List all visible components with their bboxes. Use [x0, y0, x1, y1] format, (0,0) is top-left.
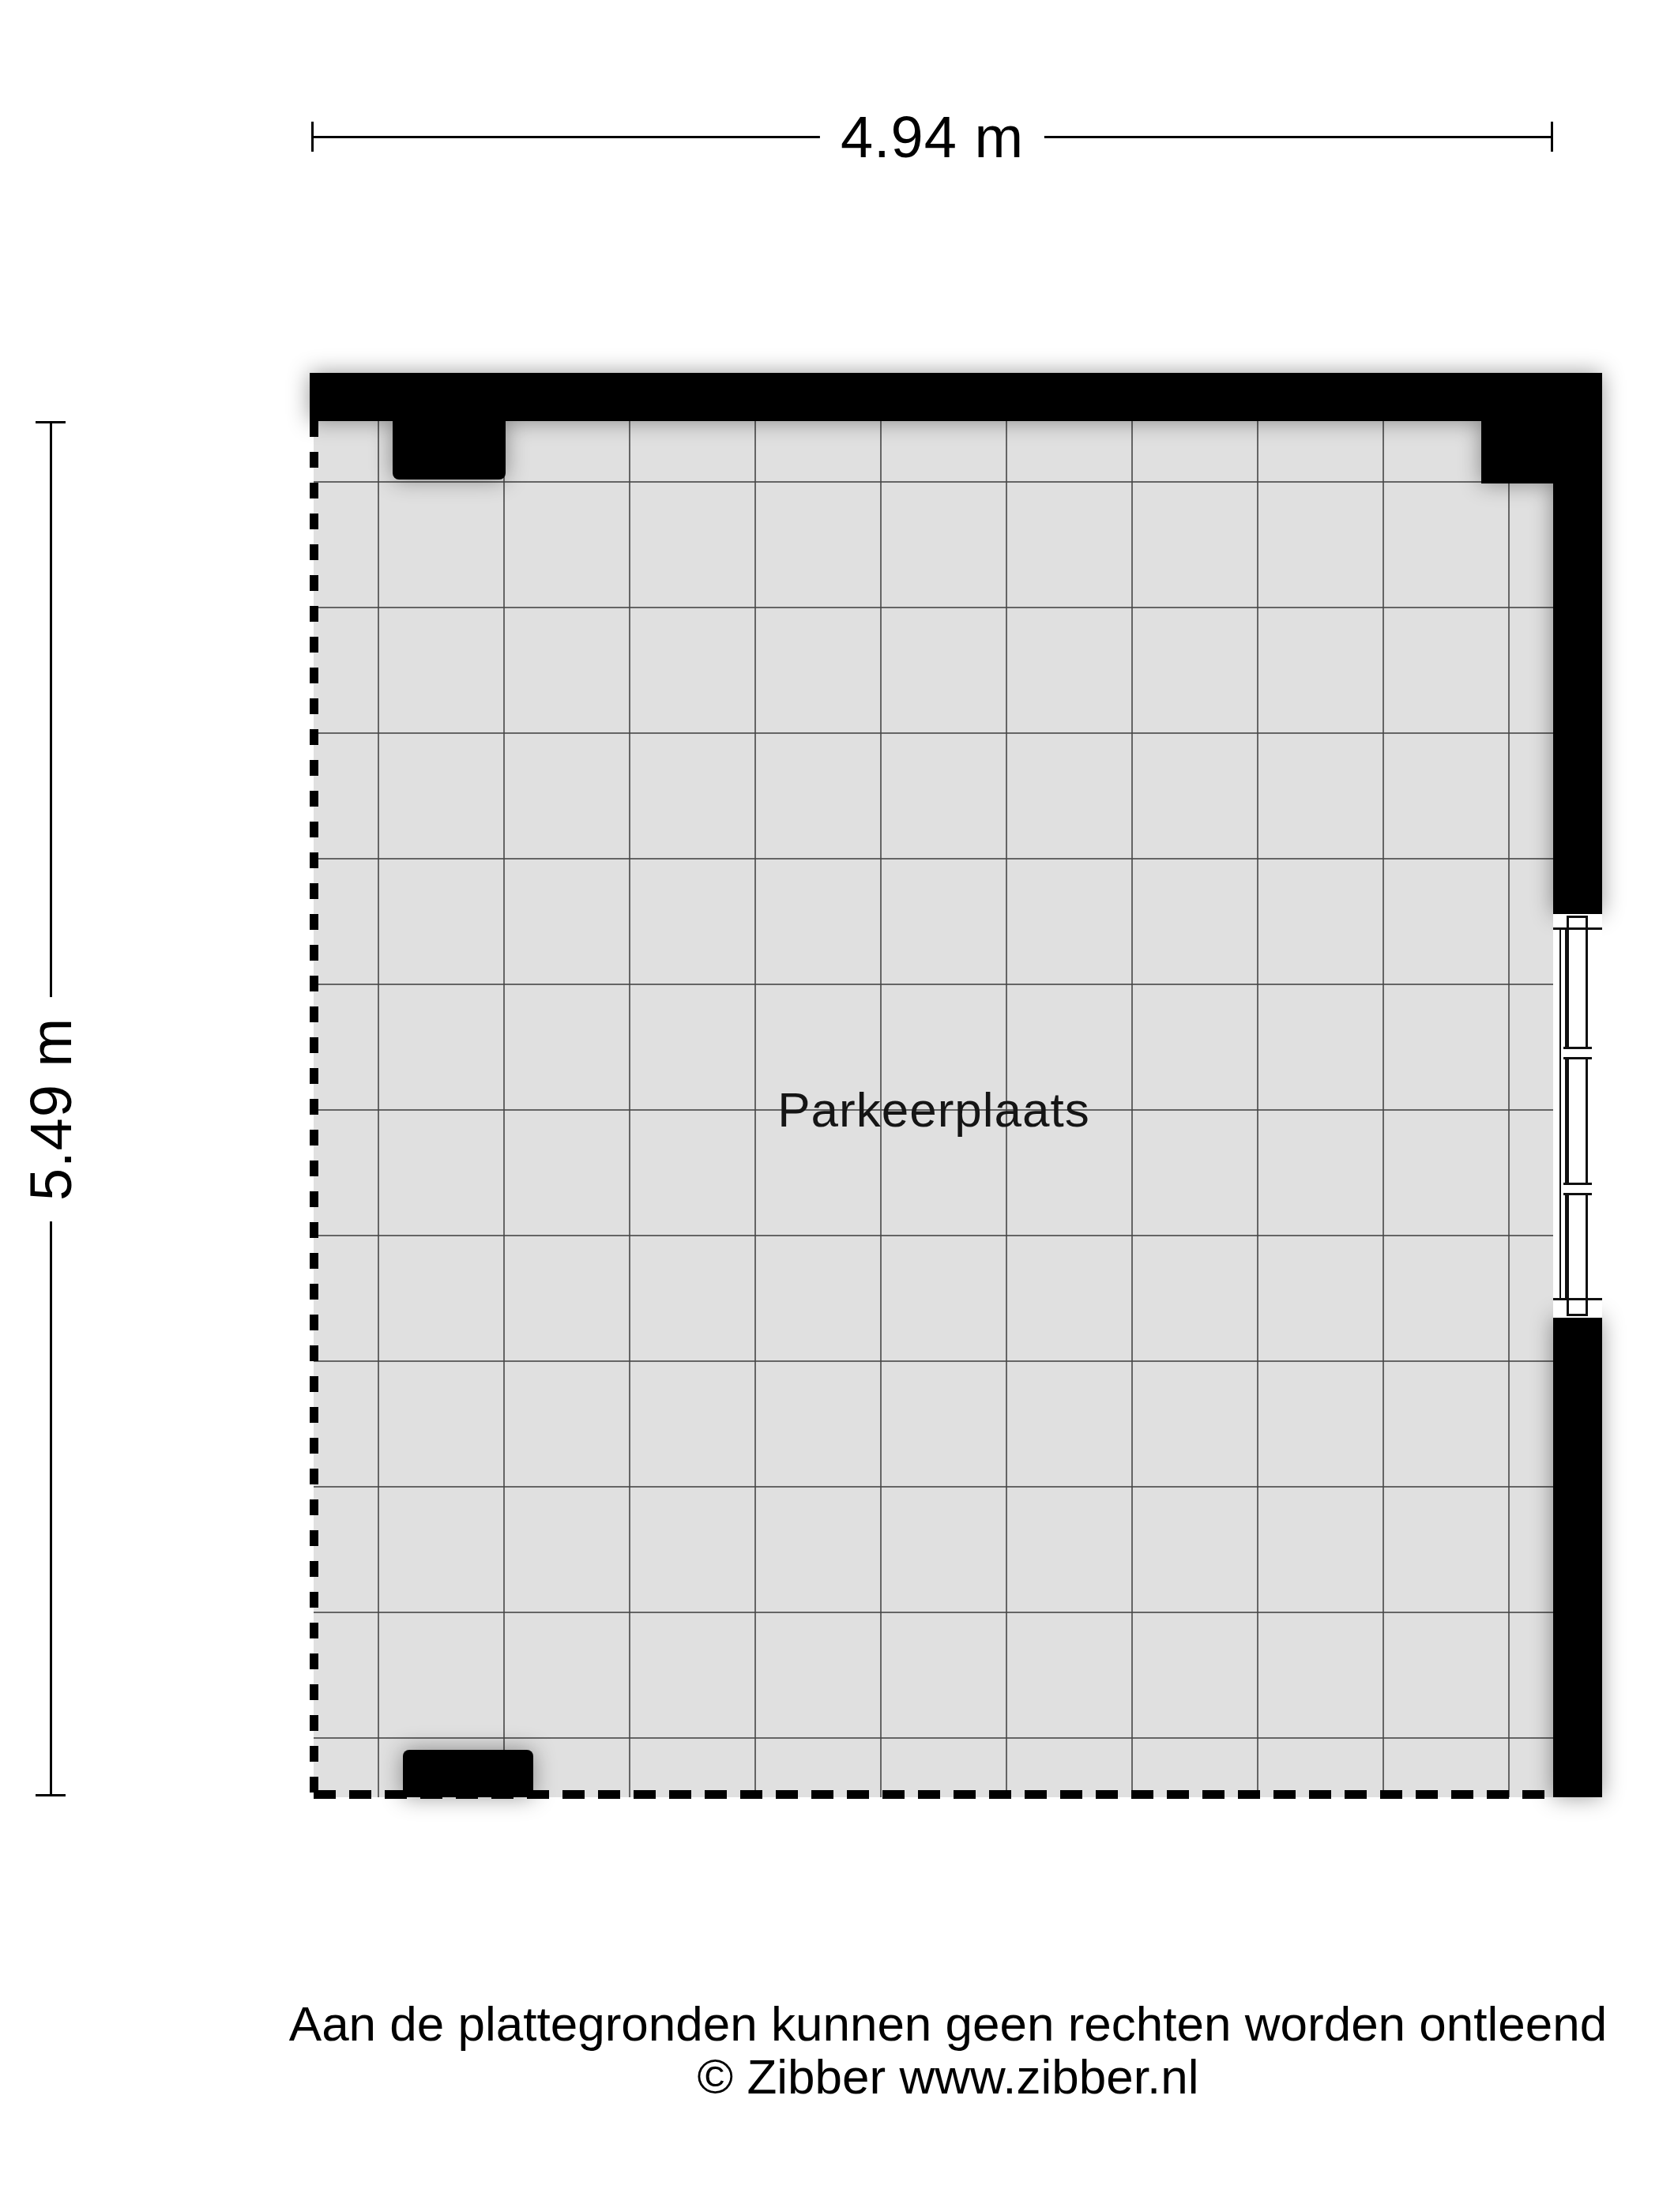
floorplan-canvas: 4.94 m 5.49 m Parkeerplaats Aan de platt…	[0, 0, 1659, 2212]
window-glazing-line	[1559, 930, 1561, 1298]
room-label: Parkeerplaats	[314, 1081, 1554, 1139]
window-mullion	[1563, 1183, 1592, 1195]
disclaimer-line1: Aan de plattegronden kunnen geen rechten…	[237, 1997, 1659, 2050]
dimension-height-label: 5.49 m	[22, 996, 81, 1221]
window-frame-bottom-cap	[1553, 1298, 1602, 1300]
window-mullion	[1563, 1047, 1592, 1059]
dimension-width-label: 4.94 m	[820, 108, 1044, 167]
wall-right-upper	[1553, 419, 1602, 914]
wall-top	[310, 373, 1602, 421]
window-glazing-line	[1565, 930, 1567, 1298]
dimension-width-tick-left	[311, 122, 314, 152]
window	[1553, 914, 1602, 1318]
wall-right-lower	[1553, 1318, 1602, 1797]
dimension-height-tick-bottom	[36, 1794, 66, 1796]
dimension-width-tick-right	[1551, 122, 1553, 152]
open-boundary-bottom	[314, 1790, 1552, 1799]
dimension-height-tick-top	[36, 421, 66, 423]
window-frame	[1567, 916, 1588, 1316]
disclaimer-line2: © Zibber www.zibber.nl	[237, 2050, 1659, 2103]
disclaimer: Aan de plattegronden kunnen geen rechten…	[237, 1997, 1659, 2103]
dimension-width-line: 4.94 m	[312, 136, 1552, 138]
dimension-height-line: 5.49 m	[50, 421, 52, 1796]
